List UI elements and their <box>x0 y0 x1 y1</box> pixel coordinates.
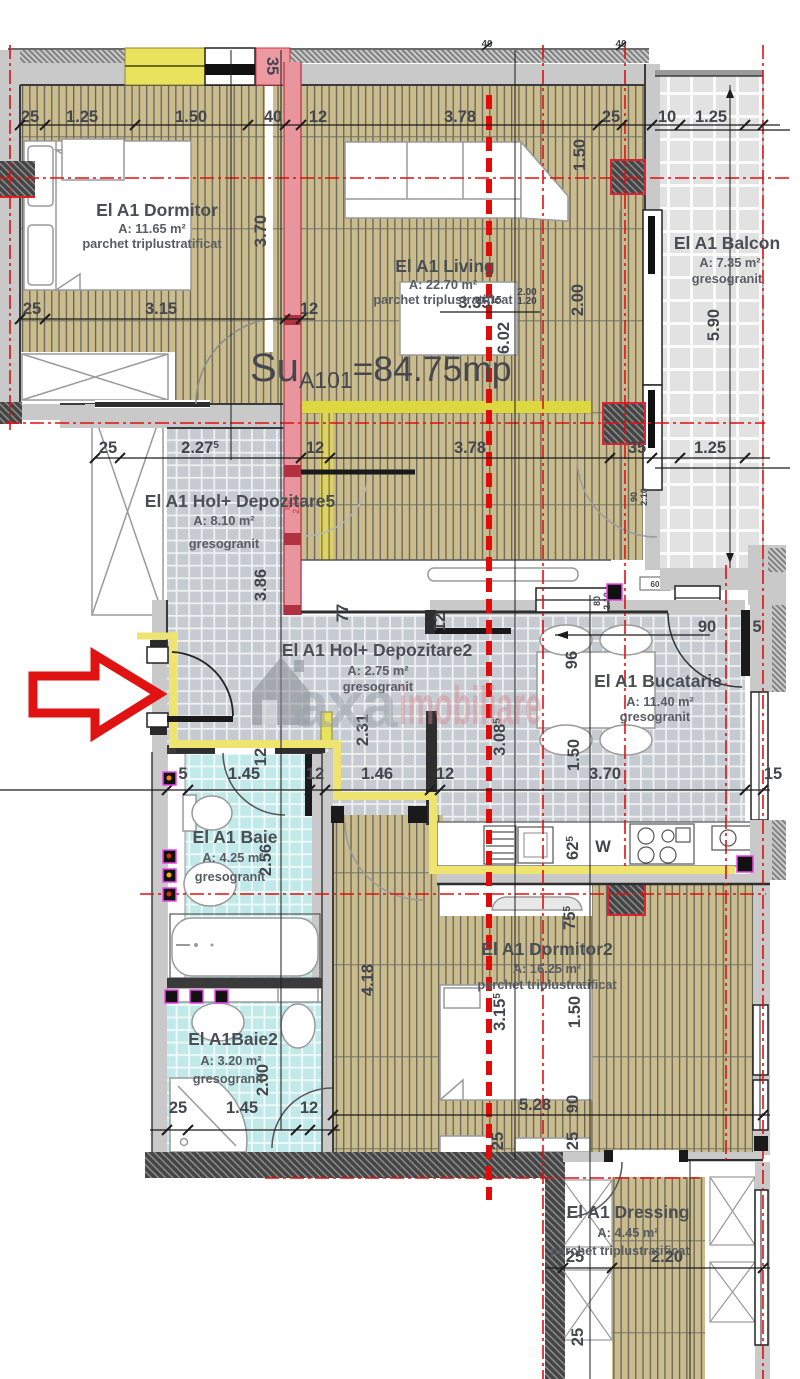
svg-text:35: 35 <box>263 57 281 75</box>
svg-text:1.50: 1.50 <box>565 739 583 771</box>
svg-text:40: 40 <box>264 108 282 126</box>
svg-text:25: 25 <box>99 439 117 457</box>
svg-text:12: 12 <box>431 613 449 631</box>
svg-text:1.20: 1.20 <box>517 296 537 307</box>
svg-text:A: 11.40 m²: A: 11.40 m² <box>626 694 694 709</box>
svg-text:1.46: 1.46 <box>361 765 393 783</box>
svg-text:parchet triplustratificat: parchet triplustratificat <box>82 236 222 251</box>
svg-text:90: 90 <box>698 618 716 636</box>
svg-text:SuA101=84.75mp: SuA101=84.75mp <box>250 346 512 393</box>
svg-text:25: 25 <box>169 1099 187 1117</box>
svg-text:1.45: 1.45 <box>228 765 260 783</box>
svg-text:90: 90 <box>564 1095 582 1113</box>
svg-text:gresogranit: gresogranit <box>692 271 763 286</box>
svg-text:90: 90 <box>629 492 639 502</box>
svg-text:12: 12 <box>300 1099 318 1117</box>
svg-text:gresogranit: gresogranit <box>189 536 260 551</box>
svg-text:El A1Baie2: El A1Baie2 <box>188 1029 278 1049</box>
svg-text:77: 77 <box>334 604 352 622</box>
svg-text:25: 25 <box>21 108 39 126</box>
svg-text:1.50: 1.50 <box>571 139 589 171</box>
svg-text:12: 12 <box>306 765 324 783</box>
svg-text:3.70: 3.70 <box>589 765 621 783</box>
svg-text:35: 35 <box>628 439 646 457</box>
svg-text:2.00: 2.00 <box>569 284 587 316</box>
svg-text:parchet triplustratificat: parchet triplustratificat <box>550 1243 690 1258</box>
svg-text:60: 60 <box>651 580 660 589</box>
svg-text:12: 12 <box>300 300 318 318</box>
svg-text:A: 4.25 m²: A: 4.25 m² <box>202 850 263 865</box>
svg-text:2.10: 2.10 <box>639 488 649 506</box>
svg-text:25: 25 <box>489 1132 507 1150</box>
svg-text:3.86: 3.86 <box>252 569 270 601</box>
svg-text:3.78: 3.78 <box>454 439 486 457</box>
svg-text:25: 25 <box>569 1328 587 1346</box>
svg-text:3.15: 3.15 <box>145 300 177 318</box>
svg-text:parchet triplustratificat: parchet triplustratificat <box>373 292 513 307</box>
svg-text:5.90: 5.90 <box>705 309 723 341</box>
svg-text:El A1 Dormitor2: El A1 Dormitor2 <box>481 939 613 959</box>
svg-text:15: 15 <box>764 765 782 783</box>
svg-text:El A1 Bucatarie: El A1 Bucatarie <box>594 671 722 691</box>
svg-text:El A1 Dormitor: El A1 Dormitor <box>96 200 218 220</box>
svg-text:25: 25 <box>564 1132 582 1150</box>
svg-text:1.25: 1.25 <box>66 108 98 126</box>
svg-text:1.50: 1.50 <box>566 996 584 1028</box>
svg-text:gresogranit: gresogranit <box>195 869 266 884</box>
svg-text:A: 8.10 m²: A: 8.10 m² <box>193 513 254 528</box>
svg-text:5: 5 <box>752 618 761 636</box>
svg-text:4.18: 4.18 <box>359 964 377 996</box>
svg-text:10: 10 <box>658 108 676 126</box>
svg-text:El A1 Balcon: El A1 Balcon <box>674 233 780 253</box>
svg-text:12: 12 <box>436 765 454 783</box>
svg-text:1.25: 1.25 <box>695 108 727 126</box>
svg-text:12: 12 <box>252 748 270 766</box>
svg-text:1.25: 1.25 <box>694 439 726 457</box>
svg-text:W: W <box>595 838 611 856</box>
svg-text:12: 12 <box>309 108 327 126</box>
svg-text:axa: axa <box>293 668 398 741</box>
svg-text:A: 11.65 m²: A: 11.65 m² <box>118 221 186 236</box>
svg-text:gresogranit: gresogranit <box>193 1071 264 1086</box>
svg-text:El A1 Living: El A1 Living <box>395 256 495 276</box>
svg-text:12: 12 <box>306 439 324 457</box>
svg-text:gresogranit: gresogranit <box>620 709 691 724</box>
svg-text:5.28: 5.28 <box>519 1096 551 1114</box>
svg-text:El A1 Hol+ Depozitare2: El A1 Hol+ Depozitare2 <box>282 640 473 660</box>
svg-text:imobiliare: imobiliare <box>399 676 542 736</box>
svg-text:3.70: 3.70 <box>252 215 270 247</box>
svg-text:80: 80 <box>592 596 602 606</box>
svg-text:1.45: 1.45 <box>226 1099 258 1117</box>
svg-text:A: 22.70 m²: A: 22.70 m² <box>409 277 477 292</box>
svg-text:1.50: 1.50 <box>175 108 207 126</box>
svg-text:El A1 Hol+ Depozitare5: El A1 Hol+ Depozitare5 <box>145 491 336 511</box>
svg-text:96: 96 <box>563 651 581 669</box>
svg-text:5: 5 <box>178 765 187 783</box>
svg-text:25: 25 <box>602 108 620 126</box>
svg-text:El A1 Dressing: El A1 Dressing <box>567 1202 690 1222</box>
svg-text:El A1 Baie: El A1 Baie <box>193 827 278 847</box>
svg-text:A: 4.45 m²: A: 4.45 m² <box>597 1225 658 1240</box>
svg-text:A: 3.20 m²: A: 3.20 m² <box>200 1053 261 1068</box>
svg-text:A: 16.25 m²: A: 16.25 m² <box>513 961 581 976</box>
svg-text:A: 7.35 m²: A: 7.35 m² <box>699 255 760 270</box>
svg-text:3.78: 3.78 <box>444 108 476 126</box>
svg-text:parchet triplustratificat: parchet triplustratificat <box>477 977 617 992</box>
svg-text:25: 25 <box>23 300 41 318</box>
